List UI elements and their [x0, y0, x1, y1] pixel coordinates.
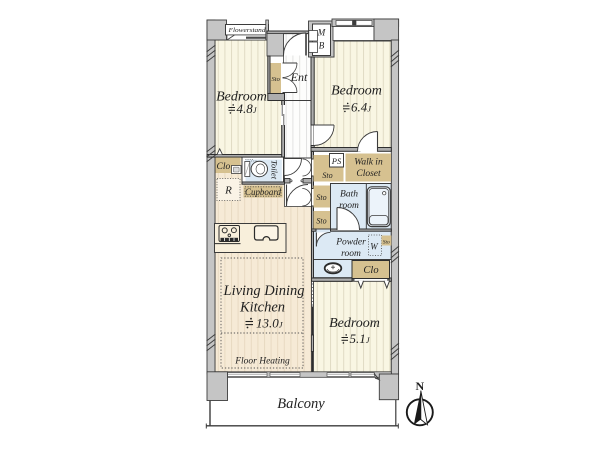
svg-text:R: R [224, 185, 232, 197]
svg-text:M: M [317, 28, 326, 38]
svg-text:Sto: Sto [322, 171, 332, 180]
svg-text:Sto: Sto [272, 76, 281, 83]
svg-text:Living Dining: Living Dining [223, 283, 305, 299]
svg-text:Floor Heating: Floor Heating [234, 357, 290, 367]
svg-text:Ent: Ent [290, 70, 308, 84]
svg-text:Clo: Clo [217, 162, 231, 172]
svg-text:Walk in: Walk in [354, 158, 383, 168]
svg-text:Powder: Powder [335, 238, 366, 248]
svg-text:Toilet: Toilet [269, 160, 279, 180]
svg-text:Sto: Sto [316, 193, 326, 202]
svg-text:N: N [415, 379, 424, 393]
svg-text:Balcony: Balcony [277, 396, 325, 412]
svg-text:room: room [341, 249, 361, 259]
svg-text:Sto: Sto [316, 217, 326, 226]
svg-text:Kitchen: Kitchen [239, 300, 285, 316]
svg-text:Bedroom: Bedroom [331, 84, 382, 99]
svg-text:PS: PS [331, 156, 342, 166]
svg-text:Closet: Closet [356, 169, 381, 179]
svg-text:Sto: Sto [383, 239, 390, 245]
svg-text:Flowerstand: Flowerstand [227, 27, 266, 34]
svg-text:B: B [319, 41, 325, 51]
svg-text:Cupboard: Cupboard [245, 188, 281, 198]
svg-text:Bedroom: Bedroom [329, 316, 380, 331]
svg-text:room: room [339, 201, 359, 211]
svg-text:Clo: Clo [363, 265, 378, 276]
svg-text:Bath: Bath [340, 190, 358, 200]
